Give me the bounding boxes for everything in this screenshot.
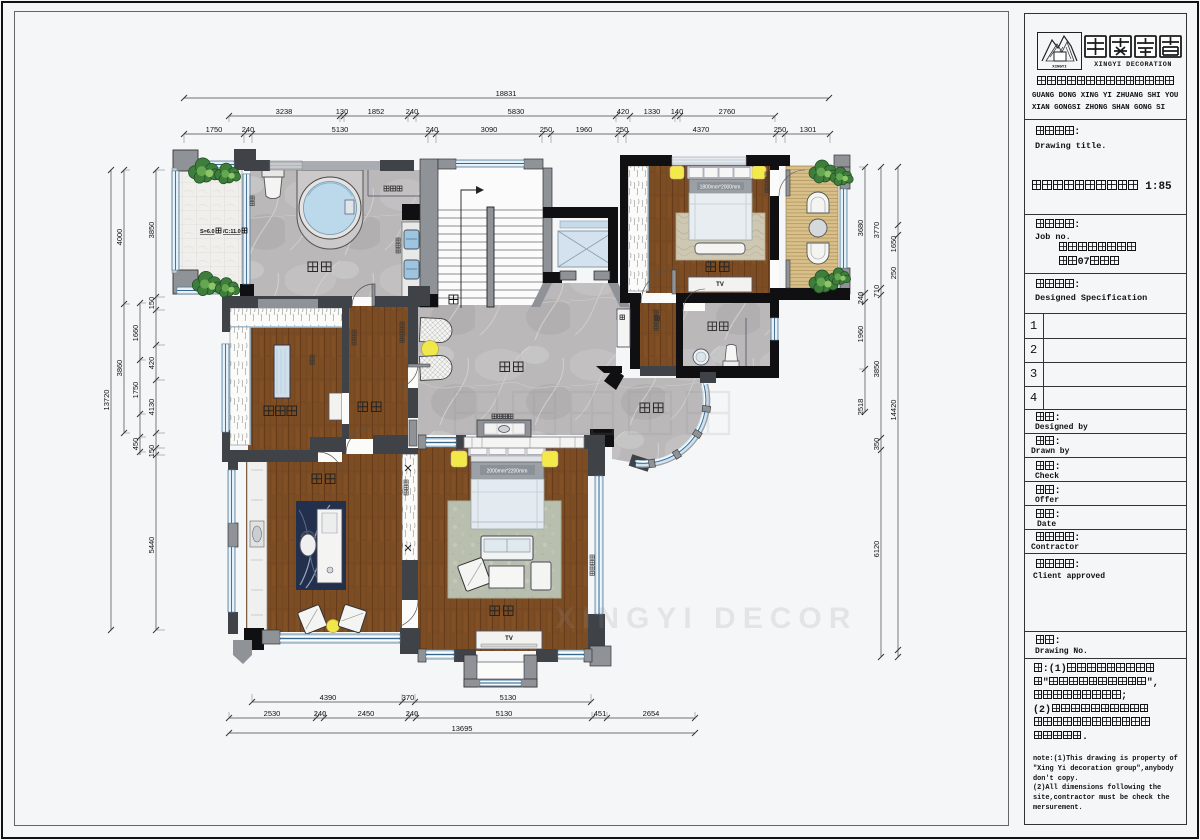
svg-text:710: 710 — [872, 285, 881, 298]
svg-text:4130: 4130 — [147, 399, 156, 416]
svg-text:TV: TV — [505, 636, 513, 642]
svg-text:XINGYI DECOR: XINGYI DECOR — [555, 602, 857, 635]
svg-text:250: 250 — [889, 267, 898, 280]
svg-text:150: 150 — [147, 297, 156, 310]
svg-text:2000mm*2200mm: 2000mm*2200mm — [487, 469, 528, 475]
svg-text:1800mm*2000mm: 1800mm*2000mm — [700, 185, 741, 191]
svg-text:150: 150 — [147, 445, 156, 458]
svg-text:420: 420 — [617, 107, 630, 116]
svg-text:2518: 2518 — [856, 399, 865, 416]
svg-text:4390: 4390 — [320, 693, 337, 702]
svg-text:450: 450 — [131, 438, 140, 451]
svg-text:13695: 13695 — [452, 724, 473, 733]
svg-text:350: 350 — [872, 438, 881, 451]
svg-text:1750: 1750 — [206, 125, 223, 134]
svg-text:XINGYI DECORATION: XINGYI DECORATION — [1094, 61, 1172, 68]
svg-text:XINGYI: XINGYI — [1052, 66, 1067, 70]
svg-text:S=6.0: S=6.0 — [200, 229, 215, 235]
svg-text:240: 240 — [856, 292, 865, 305]
svg-text:240: 240 — [406, 709, 419, 718]
svg-text:5440: 5440 — [147, 537, 156, 554]
svg-text:2760: 2760 — [719, 107, 736, 116]
svg-text:5130: 5130 — [496, 709, 513, 718]
svg-text:240: 240 — [406, 107, 419, 116]
svg-text:1330: 1330 — [644, 107, 661, 116]
svg-text:250: 250 — [616, 125, 629, 134]
svg-text:2450: 2450 — [358, 709, 375, 718]
svg-text:3090: 3090 — [481, 125, 498, 134]
svg-text:5130: 5130 — [500, 693, 517, 702]
svg-text:1960: 1960 — [576, 125, 593, 134]
svg-text:5830: 5830 — [508, 107, 525, 116]
svg-text:240: 240 — [426, 125, 439, 134]
svg-text:18831: 18831 — [496, 89, 517, 98]
svg-text:1960: 1960 — [856, 326, 865, 343]
svg-text:6120: 6120 — [872, 541, 881, 558]
svg-text:2654: 2654 — [643, 709, 660, 718]
svg-text:240: 240 — [314, 709, 327, 718]
svg-text:3770: 3770 — [872, 222, 881, 239]
svg-text:3680: 3680 — [856, 220, 865, 237]
svg-text:130: 130 — [336, 107, 349, 116]
svg-text:2530: 2530 — [264, 709, 281, 718]
svg-text:3860: 3860 — [115, 360, 124, 377]
svg-text:240: 240 — [242, 125, 255, 134]
svg-text:1650: 1650 — [889, 236, 898, 253]
svg-text:420: 420 — [147, 357, 156, 370]
svg-text:370: 370 — [402, 693, 415, 702]
svg-text:4370: 4370 — [693, 125, 710, 134]
svg-text:3238: 3238 — [276, 107, 293, 116]
svg-text:1660: 1660 — [131, 325, 140, 342]
svg-text:14420: 14420 — [889, 400, 898, 421]
svg-text:250: 250 — [774, 125, 787, 134]
svg-text:451: 451 — [594, 709, 607, 718]
svg-text:140: 140 — [671, 107, 684, 116]
svg-text:TV: TV — [716, 282, 724, 288]
svg-text:3850: 3850 — [147, 222, 156, 239]
svg-text:1301: 1301 — [800, 125, 817, 134]
svg-text:3850: 3850 — [872, 361, 881, 378]
svg-text:250: 250 — [540, 125, 553, 134]
svg-text:1750: 1750 — [131, 382, 140, 399]
svg-text:13720: 13720 — [102, 390, 111, 411]
svg-text:/C:11.0: /C:11.0 — [223, 229, 241, 235]
svg-text:5130: 5130 — [332, 125, 349, 134]
svg-text:4000: 4000 — [115, 229, 124, 246]
svg-text:1852: 1852 — [368, 107, 385, 116]
